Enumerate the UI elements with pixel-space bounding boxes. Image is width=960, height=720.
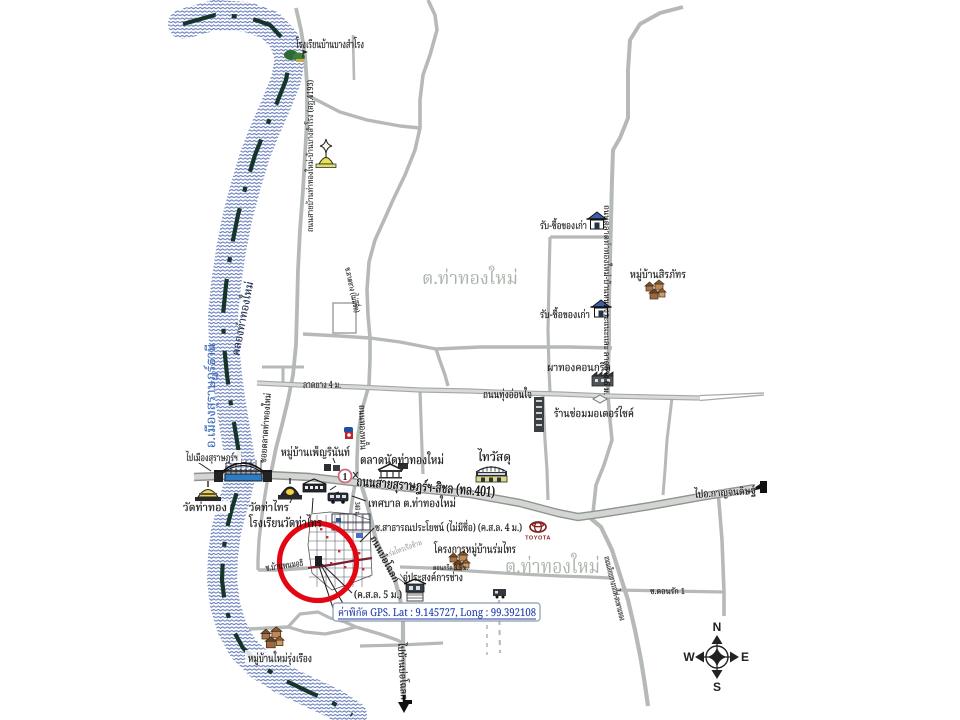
- svg-text:S: S: [713, 680, 721, 694]
- svg-text:W: W: [683, 650, 695, 664]
- svg-text:N: N: [713, 620, 722, 634]
- svg-text:E: E: [741, 650, 749, 664]
- svg-text:1: 1: [343, 472, 348, 483]
- svg-text:TOYOTA: TOYOTA: [525, 536, 551, 542]
